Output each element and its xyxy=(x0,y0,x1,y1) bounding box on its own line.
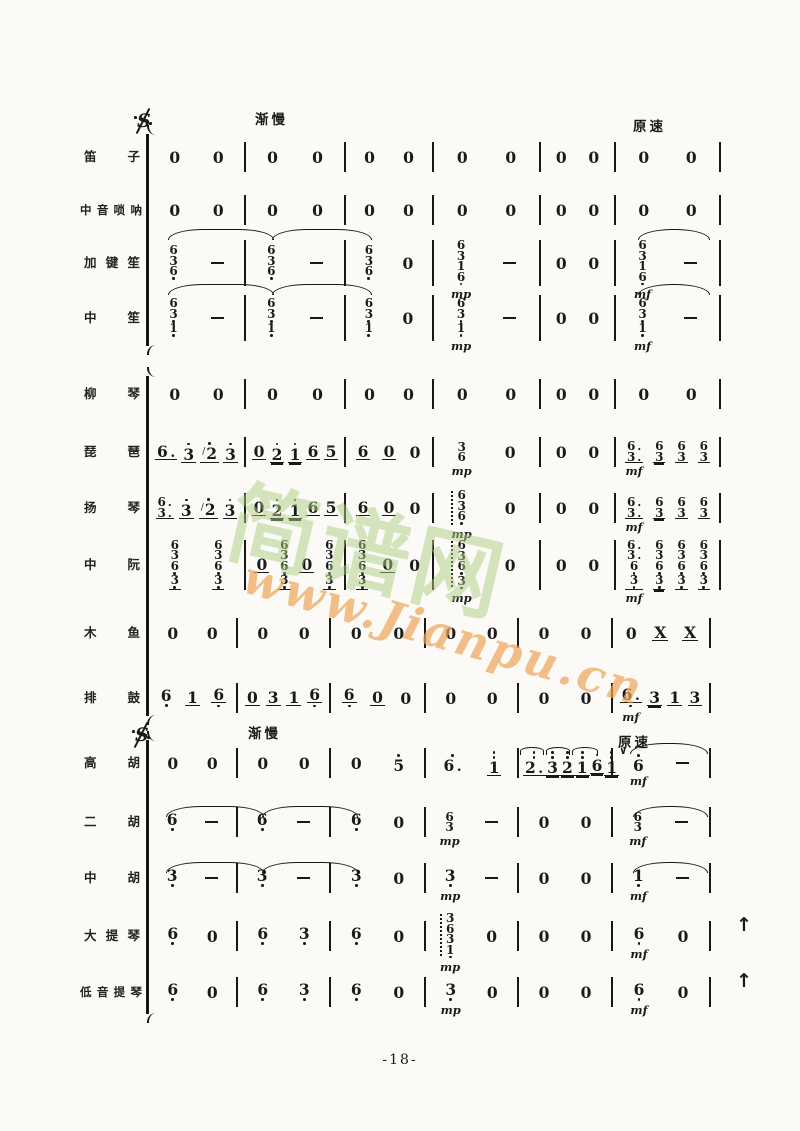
digit: 3 xyxy=(638,309,646,320)
octave-dots xyxy=(355,998,358,1001)
octave-dots xyxy=(641,283,644,286)
octave-dot xyxy=(367,334,370,337)
note-main: 6. xyxy=(155,444,177,460)
barline xyxy=(517,683,519,713)
digit: 1 xyxy=(365,323,373,334)
barline xyxy=(517,863,519,893)
note-token: 0 xyxy=(167,387,182,402)
digit: 6 xyxy=(161,688,172,703)
note-token: 0 xyxy=(211,203,226,218)
barline xyxy=(539,142,541,172)
octave-dot xyxy=(261,942,264,945)
chord-note: 1 xyxy=(457,323,465,334)
digit: 6 xyxy=(308,444,319,459)
octave-dots xyxy=(171,998,174,1001)
note-token: 6 xyxy=(159,688,174,709)
arpeggio-chord-stack: 3631 xyxy=(444,913,456,959)
octave-dots xyxy=(641,334,644,337)
chord-note: 3 xyxy=(457,309,465,320)
note-token: 0 xyxy=(586,387,601,402)
note-main: 3 xyxy=(688,690,703,706)
chord-note: 6 xyxy=(655,561,663,572)
note-token: 0 xyxy=(255,756,270,771)
barline xyxy=(614,540,616,590)
label-char: 中 xyxy=(84,309,97,327)
octave-dots xyxy=(165,704,168,707)
label-char: 提 xyxy=(106,927,119,945)
barline xyxy=(424,921,426,951)
instrument-label: 琵琶 xyxy=(84,443,140,461)
note-token: 0 xyxy=(503,150,518,165)
digit: 6 xyxy=(457,272,465,283)
note-token: 6.3.63mf xyxy=(625,540,643,591)
note-main: 0 xyxy=(579,626,594,641)
note-token: 6363 xyxy=(653,540,665,591)
note-token: 3 xyxy=(181,441,196,463)
up-bow-arrow-icon: ↑ xyxy=(736,914,752,936)
note-token: 6. xyxy=(155,444,177,460)
note-token xyxy=(682,311,699,325)
note-token xyxy=(308,256,325,270)
note-main: 0 xyxy=(297,756,312,771)
octave-dot xyxy=(641,283,644,286)
measure: 00 xyxy=(433,127,540,187)
barline xyxy=(614,379,616,409)
note-token: 6316mf xyxy=(636,240,648,286)
measure: 00 xyxy=(540,180,615,240)
digit: 0 xyxy=(257,626,268,641)
note-token: 36mp xyxy=(455,442,467,463)
page-number: -18- xyxy=(0,1052,800,1068)
octave-dot xyxy=(217,586,220,589)
digit: 3 xyxy=(183,447,194,462)
digit: 6 xyxy=(267,266,275,277)
note-token: 0 xyxy=(362,387,377,402)
tie-arc xyxy=(262,806,358,817)
note-token: 6 xyxy=(255,926,270,947)
chord-note: 6 xyxy=(171,561,179,572)
chord-note: 6 xyxy=(457,452,465,463)
digit: 0 xyxy=(400,691,411,706)
tempo-mark: 渐慢 xyxy=(255,108,288,128)
measure: 00 xyxy=(148,364,245,424)
digit: 0 xyxy=(213,150,224,165)
dynamic-mark: mf xyxy=(630,774,647,788)
note-main: 0 xyxy=(624,626,639,641)
chord-stack: 6363 xyxy=(675,540,687,591)
note-main: 0 xyxy=(167,387,182,402)
octave-dot xyxy=(367,277,370,280)
digit: 0 xyxy=(364,150,375,165)
note-main: 3 xyxy=(297,926,312,941)
measure: 00 xyxy=(540,288,615,348)
measure: 63mp xyxy=(425,792,518,852)
note-token: 0 xyxy=(255,626,270,641)
label-char: 琴 xyxy=(130,983,142,1001)
digit: 6 xyxy=(634,982,645,997)
note-main: 0 xyxy=(211,203,226,218)
note-main: 3 xyxy=(443,868,458,883)
note-token: 0 xyxy=(624,626,639,641)
instrument-label: 二胡 xyxy=(84,813,140,831)
measure: 00 xyxy=(237,733,330,793)
digit: 0 xyxy=(686,150,697,165)
note-token: 0 xyxy=(245,690,260,706)
note-token: 6363 xyxy=(169,540,181,591)
barline xyxy=(236,618,238,648)
note-token: X xyxy=(682,625,698,641)
digit: 0 xyxy=(403,150,414,165)
digit: 0 xyxy=(267,387,278,402)
label-char: 琴 xyxy=(127,499,140,517)
note-main: 0 xyxy=(579,871,594,886)
measure: 6 xyxy=(237,792,330,852)
barline xyxy=(329,683,331,713)
note-token: /2 xyxy=(200,441,219,464)
dash-note xyxy=(684,262,697,264)
augmentation-dot: . xyxy=(637,444,641,450)
chord-note: 3. xyxy=(158,508,172,519)
chord-stack: 631 xyxy=(363,298,375,337)
note-main: 0 xyxy=(400,311,415,326)
barline xyxy=(719,437,721,467)
note-main: 1 xyxy=(575,760,590,776)
measure: 616 xyxy=(148,668,237,728)
note-token: 6mf xyxy=(631,753,646,774)
note-token: 631mp xyxy=(455,298,467,337)
octave-dots xyxy=(270,334,273,337)
note-token: 3 xyxy=(266,690,281,706)
note-main: 6 xyxy=(307,687,322,703)
measure: 3 xyxy=(237,848,330,908)
note-token xyxy=(209,311,226,325)
note-token: X xyxy=(652,625,668,641)
digit: 6 xyxy=(365,266,373,277)
barline xyxy=(539,295,541,341)
digit: 0 xyxy=(487,985,498,1000)
measure: 00 xyxy=(615,364,720,424)
note-token: 3 xyxy=(688,690,703,706)
note-token: 0 xyxy=(205,985,220,1000)
label-char: 鼓 xyxy=(127,689,140,707)
chord-note: 3 xyxy=(700,575,708,586)
note-token: 0 xyxy=(265,387,280,402)
label-char: 音 xyxy=(97,201,109,219)
chord-note: 6 xyxy=(677,561,685,572)
digit: 0 xyxy=(299,626,310,641)
digit: 6 xyxy=(351,926,362,941)
note-token: 0 xyxy=(391,985,406,1000)
measure: 00 xyxy=(245,127,345,187)
label-char: 琴 xyxy=(127,385,140,403)
barline xyxy=(719,195,721,225)
dynamic-mark: mp xyxy=(439,834,459,848)
note-token: 63 xyxy=(675,441,687,463)
octave-dots xyxy=(261,942,264,945)
note-token: 6 xyxy=(590,752,605,774)
barline xyxy=(719,379,721,409)
digit: 3 xyxy=(630,575,638,586)
note-main: 0 xyxy=(401,203,416,218)
digit: 3 xyxy=(445,822,453,833)
note-main: 0 xyxy=(485,691,500,706)
note-main: 0 xyxy=(310,387,325,402)
measure: 3631mp0 xyxy=(425,906,518,966)
note-main: 0 xyxy=(455,387,470,402)
label-char: 木 xyxy=(84,624,97,642)
note-token: 6 xyxy=(211,687,226,709)
barline xyxy=(517,748,519,778)
measure: 2.32161∨ xyxy=(518,733,612,793)
measure: 0XX xyxy=(612,603,710,663)
digit: 1 xyxy=(489,760,500,775)
barline xyxy=(236,977,238,1007)
digit: 3 xyxy=(225,447,236,462)
note-main: 0 xyxy=(391,871,406,886)
digit: 3 xyxy=(268,690,279,705)
label-char: 排 xyxy=(84,689,97,707)
barline xyxy=(719,295,721,341)
octave-dot xyxy=(165,704,168,707)
measure: 6 xyxy=(148,792,237,852)
chord-stack: 6.3. xyxy=(625,441,643,463)
measure: 00 xyxy=(540,127,615,187)
digit: 0 xyxy=(384,444,395,459)
barline xyxy=(719,540,721,590)
note-token: 0 xyxy=(265,150,280,165)
note-main: 0 xyxy=(554,501,569,516)
chord-stack: 63 xyxy=(675,497,687,519)
note-token: 6 xyxy=(165,926,180,947)
barline xyxy=(432,195,434,225)
digit: 0 xyxy=(588,311,599,326)
instrument-label: 高胡 xyxy=(84,754,140,772)
digit: 3 xyxy=(649,690,660,705)
instrument-label: 中胡 xyxy=(84,869,140,887)
note-token: 0 xyxy=(401,387,416,402)
note-token: 0 xyxy=(586,501,601,516)
label-char: 阮 xyxy=(127,556,140,574)
measure: 6.3.mf636363 xyxy=(615,478,720,538)
octave-dots xyxy=(217,705,220,708)
digit: 0 xyxy=(207,929,218,944)
chord-note: 3. xyxy=(627,508,641,519)
octave-dots xyxy=(217,586,220,589)
note-token: 6 xyxy=(342,687,357,709)
chord-note: 3 xyxy=(677,452,685,463)
measure: 60 xyxy=(330,962,425,1022)
measure: 00 xyxy=(540,233,615,293)
note-token: 0 xyxy=(579,815,594,830)
note-token: 0 xyxy=(579,985,594,1000)
digit: 0 xyxy=(539,691,550,706)
digit: 6 xyxy=(157,444,168,459)
chord-note: 3 xyxy=(700,508,708,519)
note-token: 0 xyxy=(586,445,601,460)
note-main: 6 xyxy=(306,444,321,460)
digit: 3 xyxy=(365,309,373,320)
digit: X xyxy=(684,625,696,640)
digit: 1 xyxy=(669,690,680,705)
note-token: 636 xyxy=(167,245,179,280)
note-main: 0 xyxy=(684,150,699,165)
digit: 2 xyxy=(562,760,573,775)
dynamic-mark: mp xyxy=(452,464,472,478)
chord-stack: 63 xyxy=(653,441,665,463)
note-main: 0 xyxy=(586,256,601,271)
note-token: 3 xyxy=(223,441,238,463)
octave-dot xyxy=(638,942,641,945)
note-token: 0 xyxy=(554,256,569,271)
octave-dots xyxy=(303,942,306,945)
label-char: 鱼 xyxy=(127,624,140,642)
dynamic-mark: mf xyxy=(630,889,647,903)
label-char: 提 xyxy=(114,983,126,1001)
measure: 60 xyxy=(148,962,237,1022)
barline xyxy=(432,379,434,409)
digit: 0 xyxy=(556,256,567,271)
digit: 0 xyxy=(539,815,550,830)
score-row: 000000000000 xyxy=(148,364,720,424)
label-char: 加 xyxy=(84,254,97,272)
chord-note: 3 xyxy=(677,508,685,519)
dash-note xyxy=(205,877,218,879)
note-token: 0 xyxy=(167,150,182,165)
note-token: 0 xyxy=(297,626,312,641)
instrument-label: 大提琴 xyxy=(84,927,140,945)
barline xyxy=(244,142,246,172)
barline xyxy=(709,748,711,778)
note-main: 6 xyxy=(255,926,270,941)
chord-stack: 631 xyxy=(167,298,179,337)
note-token: 0 xyxy=(676,929,691,944)
digit: 0 xyxy=(393,929,404,944)
octave-dot xyxy=(261,828,264,831)
dash-note xyxy=(485,821,498,823)
note-main: 0 xyxy=(503,387,518,402)
note-main: 0 xyxy=(167,150,182,165)
label-char: 琴 xyxy=(127,927,140,945)
octave-dots xyxy=(658,586,661,589)
note-token: 0 xyxy=(554,558,569,573)
note-token: 0 xyxy=(586,558,601,573)
barline xyxy=(614,493,616,523)
note-main: 0 xyxy=(636,387,651,402)
note-main: 0 xyxy=(579,815,594,830)
chord-note: 1 xyxy=(446,945,454,956)
chord-note: 6 xyxy=(457,272,465,283)
note-main: 1 xyxy=(185,690,200,706)
digit: 0 xyxy=(402,256,413,271)
note-main: 0 xyxy=(554,203,569,218)
chord-stack: 63 xyxy=(653,497,665,519)
augmentation-dot: . xyxy=(637,511,641,517)
note-main: 0 xyxy=(255,626,270,641)
digit: 3 xyxy=(181,503,192,518)
note-main: 6 xyxy=(342,687,357,703)
chord-note: 3 xyxy=(365,309,373,320)
digit: 6 xyxy=(634,926,645,941)
measure: 00 xyxy=(345,127,433,187)
digit: 0 xyxy=(267,150,278,165)
digit: 6 xyxy=(169,266,177,277)
barline xyxy=(539,540,541,590)
digit: 0 xyxy=(638,150,649,165)
dash-note xyxy=(676,877,689,879)
digit: 0 xyxy=(312,387,323,402)
digit: 0 xyxy=(581,929,592,944)
digit: 3 xyxy=(457,309,465,320)
score-row: 33303mp001mf xyxy=(148,848,710,908)
note-main: 1 xyxy=(667,690,682,706)
score-canvas: 简谱网 www.Jianpu.cn -18- S渐慢原速S渐慢原速笛子00000… xyxy=(0,0,800,1131)
octave-dots xyxy=(261,998,264,1001)
instrument-label: 低音提琴 xyxy=(80,983,142,1001)
instrument-label: 扬琴 xyxy=(84,499,140,517)
note-main: 0 xyxy=(554,150,569,165)
note-main: 6 xyxy=(349,926,364,941)
note-token: 1 xyxy=(185,690,200,706)
note-token: 0 xyxy=(636,387,651,402)
measure: 00 xyxy=(345,364,433,424)
note-main: 0 xyxy=(554,311,569,326)
digit: 0 xyxy=(556,150,567,165)
note-token: 0 xyxy=(554,387,569,402)
octave-dot xyxy=(172,334,175,337)
octave-dots xyxy=(171,828,174,831)
digit: 0 xyxy=(364,387,375,402)
chord-stack: 6.3. xyxy=(625,497,643,519)
tie-arc xyxy=(272,284,372,295)
note-main: 0 xyxy=(167,203,182,218)
digit: 6 xyxy=(592,758,603,773)
digit: 0 xyxy=(588,558,599,573)
note-main: 0 xyxy=(537,815,552,830)
note-main: 3 xyxy=(179,503,194,519)
chord-note: 3 xyxy=(677,575,685,586)
digit: 2 xyxy=(525,760,536,775)
digit: 0 xyxy=(351,756,362,771)
note-token: 0 xyxy=(537,929,552,944)
label-char: 中 xyxy=(84,556,97,574)
label-char: 中 xyxy=(80,201,92,219)
measure: 6360 xyxy=(345,233,433,293)
digit: 3 xyxy=(690,690,701,705)
octave-dot xyxy=(172,277,175,280)
dynamic-mark: mf xyxy=(629,834,646,848)
octave-dots xyxy=(449,998,452,1001)
note-main: 0 xyxy=(485,985,500,1000)
note-token: 0 xyxy=(484,929,499,944)
note-token: 6.3.mf xyxy=(625,497,643,519)
label-char: 笛 xyxy=(84,148,97,166)
chord-stack: 6363 xyxy=(653,540,665,591)
note-token: 631 xyxy=(167,298,179,337)
chord-stack: 636 xyxy=(167,245,179,280)
note-main: 0 xyxy=(255,756,270,771)
note-main: 0 xyxy=(684,387,699,402)
barline xyxy=(611,863,613,893)
dash-note xyxy=(503,317,516,319)
note-token: 0 xyxy=(503,445,518,460)
note-main: 0 xyxy=(586,150,601,165)
octave-dot xyxy=(355,884,358,887)
measure: 00 xyxy=(540,364,615,424)
digit: 0 xyxy=(169,387,180,402)
digit: 0 xyxy=(638,387,649,402)
note-token: 0 xyxy=(579,626,594,641)
digit: 6 xyxy=(167,982,178,997)
